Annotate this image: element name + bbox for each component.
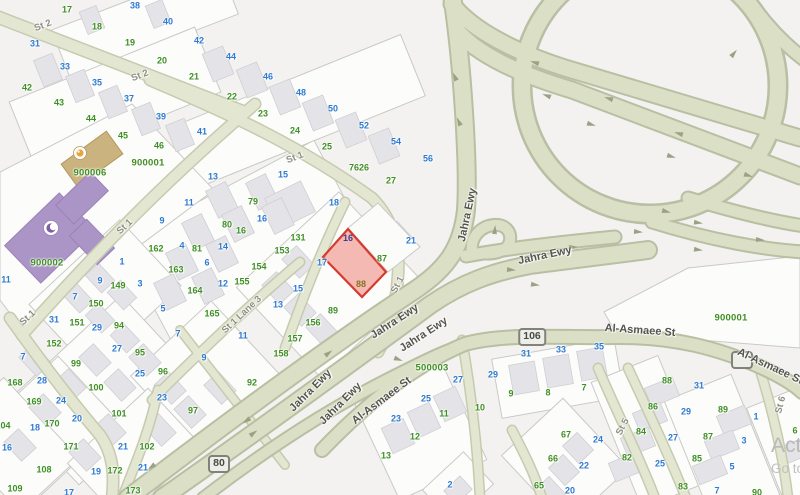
parcel-number-green[interactable]: 22	[227, 93, 237, 102]
highway-name-label: Al-Asmaee St	[604, 323, 676, 339]
parcel-number-green[interactable]: 162	[148, 245, 163, 254]
parcel-number-green[interactable]: 81	[192, 245, 202, 254]
parcel-number-blue[interactable]: 17	[64, 489, 74, 495]
map-canvas[interactable]: 80106St 2St 2St 1St 1St 1St 1 Lane 3St 1…	[0, 0, 800, 495]
block-number[interactable]: 900001	[132, 158, 165, 168]
parcel-number-green[interactable]: 67	[561, 431, 571, 440]
parcel-number-blue[interactable]: 29	[681, 408, 691, 417]
parcel-number-green[interactable]: 92	[247, 379, 257, 388]
parcel-number-blue[interactable]: 35	[594, 343, 604, 352]
parcel-number-blue[interactable]: 52	[359, 122, 369, 131]
parcel-number-green[interactable]: 96	[158, 368, 168, 377]
street-name-label: St 2	[130, 68, 150, 83]
highway-name-label: Jahra Ewy	[457, 187, 479, 243]
parcel-number-green[interactable]: 84	[636, 428, 646, 437]
parcel-number-blue[interactable]: 33	[556, 346, 566, 355]
parcel-number-green[interactable]: 7626	[349, 164, 369, 173]
parcel-number-blue[interactable]: 24	[56, 397, 66, 406]
parcel-number-blue[interactable]: 9	[97, 277, 102, 286]
street-name-label: St 1	[285, 150, 305, 165]
parcel-number-blue[interactable]: 21	[118, 443, 128, 452]
parcel-number-green[interactable]: 172	[107, 467, 122, 476]
parcel-number-green[interactable]: 65	[534, 482, 544, 491]
parcel-number-blue[interactable]: 15	[293, 285, 303, 294]
parcel-number-green[interactable]: 79	[248, 198, 258, 207]
parcel-number-green[interactable]: 88	[662, 377, 672, 386]
parcel-number-blue[interactable]: 17	[317, 259, 327, 268]
parcel-number-green[interactable]: 12	[410, 433, 420, 442]
parcel-number-blue[interactable]: 25	[655, 460, 665, 469]
parcel-number-blue[interactable]: 31	[694, 382, 704, 391]
parcel-number-blue[interactable]: 11	[1, 276, 11, 285]
parcel-number-green[interactable]: 104	[0, 422, 11, 431]
parcel-number-blue[interactable]: 22	[579, 462, 589, 471]
parcel-number-green[interactable]: 18	[92, 23, 102, 32]
parcel-number-green[interactable]: 149	[110, 282, 125, 291]
street-name-label: St 2	[33, 18, 53, 33]
parcel-number-green[interactable]: 108	[36, 466, 51, 475]
parcel-number-blue[interactable]: 25	[135, 370, 145, 379]
parcel-number-green[interactable]: 11	[439, 410, 449, 419]
parcel-number-blue[interactable]: 35	[92, 79, 102, 88]
parcel-number-green[interactable]: 169	[26, 398, 41, 407]
parcel-number-blue[interactable]: 11	[238, 332, 248, 341]
highway-name-label: Jahra Ewy	[517, 245, 573, 267]
parcel-number-green[interactable]: 16	[236, 227, 246, 236]
parcel-number-blue[interactable]: 9	[159, 217, 164, 226]
parcel-number-green[interactable]: 17	[62, 6, 72, 15]
parcel-number-blue[interactable]: 50	[328, 105, 338, 114]
parcel-number-green[interactable]: 158	[273, 350, 288, 359]
parcel-number-green[interactable]: 13	[381, 452, 391, 461]
parcel-number-green[interactable]: 163	[168, 266, 183, 275]
parcel-number-green[interactable]: 95	[135, 349, 145, 358]
parcel-number-blue[interactable]: 29	[488, 371, 498, 380]
parcel-number-green[interactable]: 46	[154, 142, 164, 151]
parcel-number-green[interactable]: 25	[322, 143, 332, 152]
parcel-number-blue[interactable]: 31	[49, 316, 59, 325]
label-layer: 80106St 2St 2St 1St 1St 1St 1 Lane 3St 1…	[0, 0, 800, 495]
block-number[interactable]: 900001	[715, 313, 748, 323]
parcel-number-blue[interactable]: 7	[20, 353, 25, 362]
parcel-number-blue[interactable]: 31	[30, 40, 40, 49]
parcel-number-green[interactable]: 97	[188, 407, 198, 416]
parcel-number-green[interactable]: 173	[125, 487, 140, 495]
parcel-number-green[interactable]: 89	[328, 307, 338, 316]
parcel-number-green[interactable]: 23	[258, 110, 268, 119]
parcel-number-green[interactable]: 87	[377, 255, 387, 264]
route-shield: 80	[208, 455, 230, 473]
parcel-number-blue[interactable]: 3	[741, 437, 746, 446]
parcel-number-blue[interactable]: 29	[92, 324, 102, 333]
parcel-number-blue[interactable]: 19	[91, 468, 101, 477]
parcel-number-green[interactable]: 151	[69, 319, 84, 328]
parcel-number-blue[interactable]: 41	[197, 128, 207, 137]
parcel-number-blue[interactable]: 25	[421, 395, 431, 404]
selected-parcel-number-top: 16	[343, 233, 353, 243]
parcel-number-green[interactable]: 85	[692, 455, 702, 464]
parcel-number-green[interactable]: 157	[287, 335, 302, 344]
parcel-number-green[interactable]: 153	[274, 247, 289, 256]
parcel-number-green[interactable]: 8	[545, 389, 550, 398]
parcel-number-green[interactable]: 90	[752, 489, 762, 495]
parcel-number-blue[interactable]: 13	[208, 173, 218, 182]
parcel-number-blue[interactable]: 48	[296, 89, 306, 98]
parcel-number-blue[interactable]: 56	[423, 155, 433, 164]
parcel-number-green[interactable]: 82	[622, 454, 632, 463]
parcel-number-green[interactable]: 168	[7, 379, 22, 388]
parcel-number-blue[interactable]: 13	[273, 301, 283, 310]
street-name-label: St 1	[390, 275, 407, 295]
parcel-number-blue[interactable]: 9	[201, 354, 206, 363]
parcel-number-green[interactable]: 170	[44, 420, 59, 429]
parcel-number-green[interactable]: 155	[234, 278, 249, 287]
parcel-number-blue[interactable]: 15	[278, 171, 288, 180]
block-number[interactable]: 500003	[416, 363, 449, 373]
parcel-number-green[interactable]: 20	[157, 57, 167, 66]
parcel-number-green[interactable]: 66	[548, 455, 558, 464]
parcel-number-blue[interactable]: 16	[257, 215, 267, 224]
parcel-number-green[interactable]: 89	[718, 406, 728, 415]
parcel-number-green[interactable]: 165	[204, 310, 219, 319]
parcel-number-green[interactable]: 24	[290, 127, 300, 136]
block-number[interactable]: 900002	[31, 258, 64, 268]
parcel-number-blue[interactable]: 7	[72, 293, 77, 302]
parcel-number-green[interactable]: 45	[118, 132, 128, 141]
parcel-number-blue[interactable]: 38	[130, 2, 140, 11]
parcel-number-green[interactable]: 171	[63, 443, 78, 452]
parcel-number-blue[interactable]: 27	[668, 434, 678, 443]
parcel-number-green[interactable]: 150	[88, 300, 103, 309]
street-name-label: St 6	[774, 395, 788, 414]
parcel-number-blue[interactable]: 1	[119, 258, 124, 267]
highway-name-label: Al-Asmaee St	[350, 375, 413, 426]
parcel-number-green[interactable]: 131	[290, 234, 305, 243]
parcel-number-blue[interactable]: 20	[72, 415, 82, 424]
parcel-number-blue[interactable]: 3	[137, 280, 142, 289]
parcel-number-blue[interactable]: 4	[179, 242, 184, 251]
street-name-label: St 1	[115, 218, 134, 237]
parcel-number-blue[interactable]: 12	[218, 280, 228, 289]
parcel-number-blue[interactable]: 18	[30, 424, 40, 433]
parcel-number-green[interactable]: 19	[125, 39, 135, 48]
parcel-number-green[interactable]: 9	[508, 390, 513, 399]
parcel-number-blue[interactable]: 14	[218, 243, 228, 252]
parcel-number-green[interactable]: 100	[88, 384, 103, 393]
parcel-number-green[interactable]: 109	[7, 485, 22, 494]
parcel-number-blue[interactable]: 33	[60, 63, 70, 72]
parcel-number-blue[interactable]: 39	[156, 113, 166, 122]
parcel-number-blue[interactable]: 31	[521, 350, 531, 359]
parcel-number-green[interactable]: 7	[581, 384, 586, 393]
parcel-number-green[interactable]: 10	[475, 404, 485, 413]
parcel-number-blue[interactable]: 7	[175, 330, 180, 339]
parcel-number-blue[interactable]: 23	[157, 394, 167, 403]
parcel-number-blue[interactable]: 27	[112, 345, 122, 354]
parcel-number-green[interactable]: 42	[22, 84, 32, 93]
parcel-number-green[interactable]: 27	[386, 177, 396, 186]
parcel-number-green[interactable]: 102	[139, 443, 154, 452]
block-number[interactable]: 900006	[74, 168, 107, 178]
parcel-number-blue[interactable]: 46	[263, 73, 273, 82]
street-name-label: St 1	[18, 309, 37, 328]
parcel-number-blue[interactable]: 21	[138, 464, 148, 473]
street-name-label: St 5	[615, 417, 632, 437]
parcel-number-blue[interactable]: 23	[391, 415, 401, 424]
parcel-number-blue[interactable]: 44	[226, 53, 236, 62]
parcel-number-blue[interactable]: 11	[184, 199, 194, 208]
parcel-number-blue[interactable]: 37	[124, 95, 134, 104]
parcel-number-blue[interactable]: 40	[163, 18, 173, 27]
parcel-number-green[interactable]: 99	[71, 360, 81, 369]
parcel-number-blue[interactable]: 21	[406, 237, 416, 246]
parcel-number-green[interactable]: 101	[111, 410, 126, 419]
parcel-number-blue[interactable]: 24	[593, 436, 603, 445]
parcel-number-blue[interactable]: 7	[714, 487, 719, 495]
parcel-number-green[interactable]: 44	[86, 115, 96, 124]
parcel-number-blue[interactable]: 5	[729, 463, 734, 472]
parcel-number-blue[interactable]: 54	[391, 138, 401, 147]
parcel-number-blue[interactable]: 16	[2, 444, 12, 453]
parcel-number-green[interactable]: 43	[54, 99, 64, 108]
parcel-number-green[interactable]: 80	[222, 221, 232, 230]
street-name-label: St 1 Lane 3	[220, 294, 263, 335]
parcel-number-blue[interactable]: 42	[194, 37, 204, 46]
parcel-number-blue[interactable]: 6	[204, 259, 209, 268]
selected-parcel-number-bottom: 88	[356, 279, 366, 289]
parcel-number-green[interactable]: 6	[792, 427, 797, 436]
parcel-number-green[interactable]: 21	[189, 73, 199, 82]
parcel-number-green[interactable]: 164	[187, 287, 202, 296]
parcel-number-green[interactable]: 154	[251, 263, 266, 272]
parcel-number-green[interactable]: 156	[305, 319, 320, 328]
route-shield: 106	[518, 328, 546, 346]
parcel-number-green[interactable]: 152	[46, 340, 61, 349]
parcel-number-blue[interactable]: 18	[329, 199, 339, 208]
parcel-number-blue[interactable]: 20	[565, 487, 575, 495]
parcel-number-green[interactable]: 83	[678, 483, 688, 492]
parcel-number-green[interactable]: 87	[703, 433, 713, 442]
parcel-number-blue[interactable]: 28	[37, 377, 47, 386]
parcel-number-blue[interactable]: 1	[753, 413, 758, 422]
parcel-number-blue[interactable]: 27	[453, 376, 463, 385]
parcel-number-blue[interactable]: 2	[447, 481, 452, 490]
parcel-number-green[interactable]: 86	[648, 403, 658, 412]
parcel-number-green[interactable]: 94	[114, 322, 124, 331]
parcel-number-blue[interactable]: 5	[160, 305, 165, 314]
